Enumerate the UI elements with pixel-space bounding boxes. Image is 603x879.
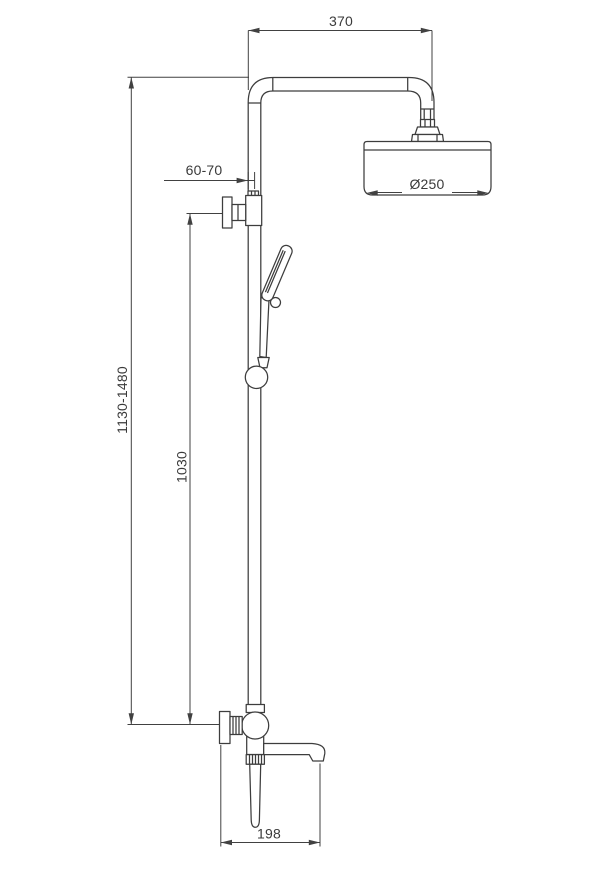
label-riser-height: 1030 <box>174 451 190 483</box>
wall-union-lower <box>220 712 231 744</box>
label-head-diameter: Ø250 <box>409 176 444 192</box>
arm-connector-nut <box>412 120 444 142</box>
label-overall-height: 1130-1480 <box>114 366 130 434</box>
hand-shower <box>245 244 294 389</box>
mixer-top-collar <box>246 705 264 713</box>
lever <box>250 764 261 827</box>
technical-drawing-canvas: 370 60-70 Ø250 1130-1480 1030 198 <box>0 0 603 879</box>
label-wall-distance: 60-70 <box>186 162 223 178</box>
mixer-valve-knob <box>242 712 269 739</box>
dimension-arm-reach <box>248 28 432 101</box>
slider-ball-joint <box>245 366 267 388</box>
wall-union-upper <box>223 191 262 228</box>
mixer-lever-handle <box>246 755 264 828</box>
label-spout-reach: 198 <box>257 826 281 842</box>
mixer-valve <box>220 705 269 755</box>
label-arm-reach: 370 <box>329 13 353 29</box>
hand-shower-wand <box>260 244 294 303</box>
shower-arm <box>248 78 434 120</box>
tub-spout <box>264 744 325 762</box>
hand-shower-handle <box>260 298 269 358</box>
dimension-riser-height <box>187 214 223 725</box>
